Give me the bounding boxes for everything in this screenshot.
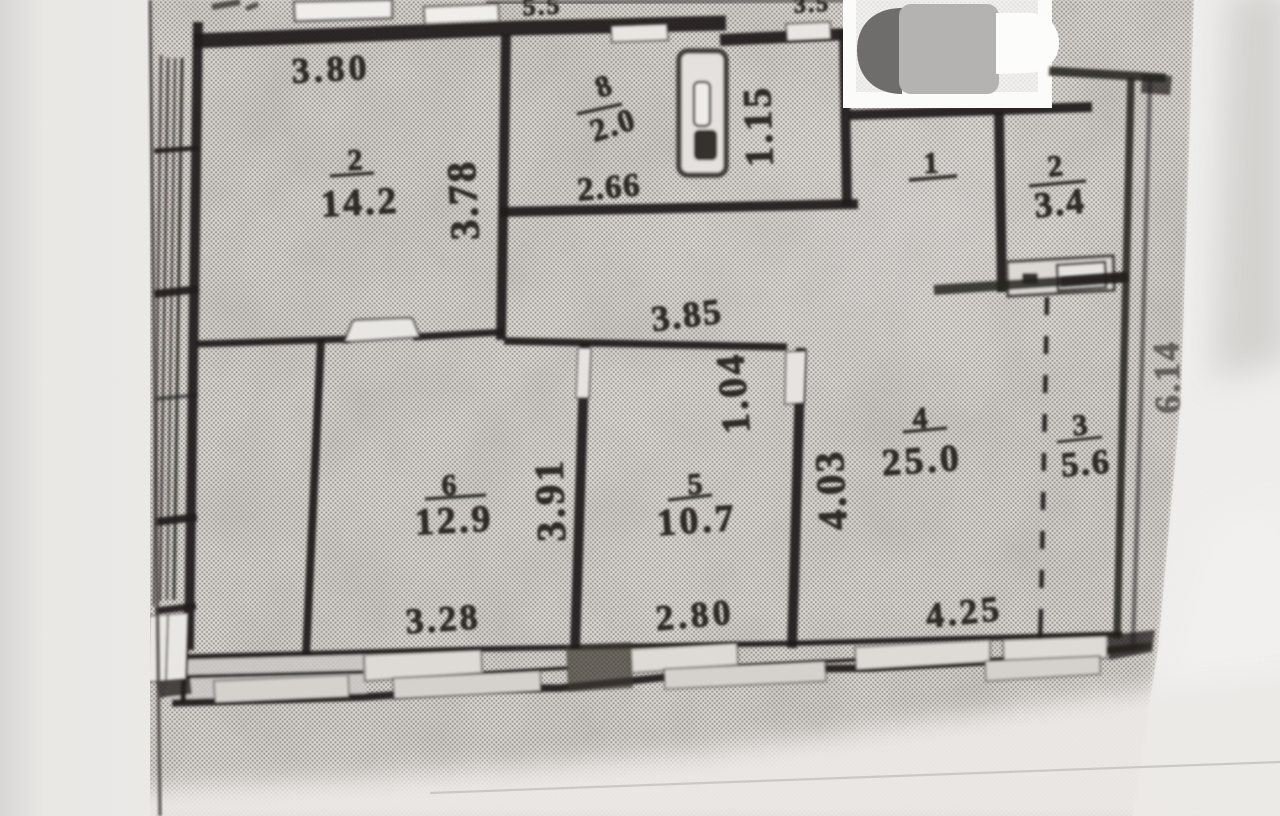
svg-text:5.5: 5.5: [522, 0, 563, 21]
svg-text:2.66: 2.66: [576, 167, 643, 208]
svg-text:3.80: 3.80: [291, 47, 372, 91]
svg-text:14.2: 14.2: [320, 180, 401, 226]
svg-text:1.04: 1.04: [707, 350, 759, 436]
svg-text:25.0: 25.0: [881, 437, 964, 485]
svg-text:1: 1: [923, 147, 941, 181]
svg-text:12.9: 12.9: [414, 498, 495, 544]
svg-text:3.91: 3.91: [525, 457, 574, 542]
svg-text:5.6: 5.6: [1059, 441, 1113, 484]
svg-text:2.80: 2.80: [654, 592, 736, 639]
svg-text:4.03: 4.03: [806, 449, 856, 532]
svg-text:3.5: 3.5: [793, 0, 831, 19]
svg-text:3.28: 3.28: [404, 596, 482, 641]
svg-text:2: 2: [1046, 149, 1067, 184]
svg-text:3.78: 3.78: [438, 159, 488, 242]
svg-text:4.25: 4.25: [924, 588, 1005, 636]
svg-text:10.7: 10.7: [656, 497, 739, 545]
svg-text:3.4: 3.4: [1032, 180, 1088, 225]
svg-text:1.15: 1.15: [734, 84, 782, 168]
